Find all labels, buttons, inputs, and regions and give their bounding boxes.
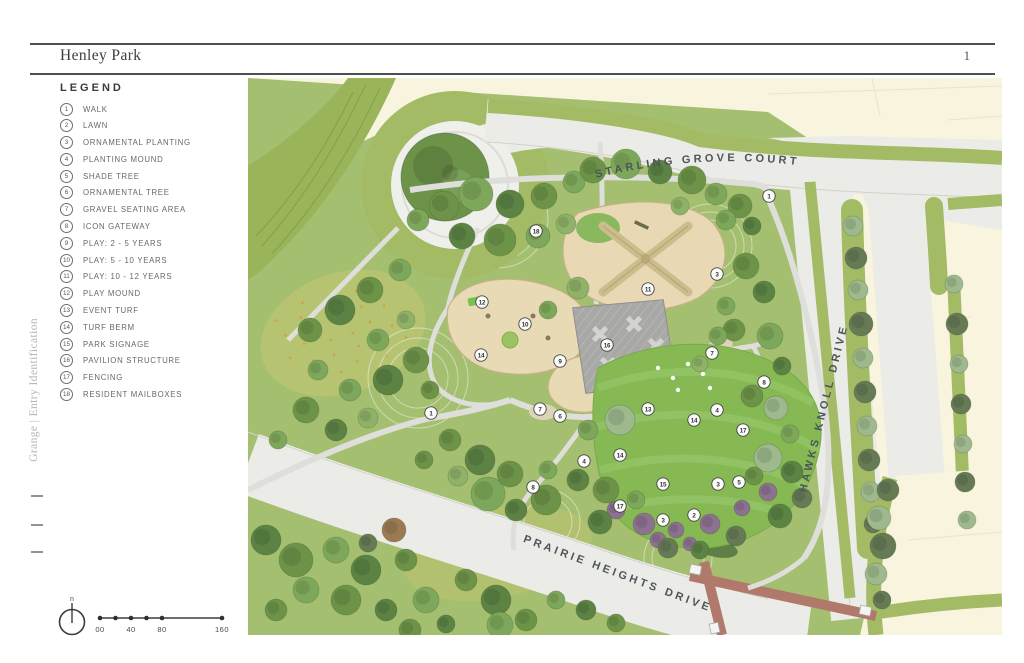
legend-item-number: 6 <box>60 186 73 199</box>
svg-text:14: 14 <box>691 417 698 424</box>
legend-item-label: FENCING <box>83 373 123 382</box>
scale-label: 160 <box>215 625 229 634</box>
legend-item-label: PLANTING MOUND <box>83 155 163 164</box>
callout-marker: 3 <box>711 268 723 280</box>
callout-marker: 4 <box>578 455 590 467</box>
callout-marker: 5 <box>733 476 745 488</box>
legend-item-label: PLAY MOUND <box>83 289 141 298</box>
legend-item-label: SHADE TREE <box>83 172 140 181</box>
legend-item-number: 5 <box>60 170 73 183</box>
svg-text:14: 14 <box>617 452 624 459</box>
legend-item: 13EVENT TURF <box>60 305 245 317</box>
svg-text:18: 18 <box>533 228 540 235</box>
callout-marker: 17 <box>737 424 749 436</box>
legend-item-number: 8 <box>60 220 73 233</box>
legend-item: 9PLAY: 2 - 5 YEARS <box>60 237 245 249</box>
legend-item: 4PLANTING MOUND <box>60 153 245 165</box>
legend-item: 11PLAY: 10 - 12 YEARS <box>60 271 245 283</box>
legend-item-label: GRAVEL SEATING AREA <box>83 205 186 214</box>
legend-item: 12PLAY MOUND <box>60 288 245 300</box>
callout-marker: 4 <box>711 404 723 416</box>
svg-text:12: 12 <box>479 299 486 306</box>
svg-text:17: 17 <box>617 503 624 510</box>
legend-item-number: 11 <box>60 270 73 283</box>
callout-marker: 14 <box>688 414 700 426</box>
north-arrow: n <box>50 592 94 647</box>
legend-item-label: LAWN <box>83 121 108 130</box>
svg-text:16: 16 <box>604 342 611 349</box>
legend-item: 2LAWN <box>60 120 245 132</box>
legend-item: 18RESIDENT MAILBOXES <box>60 389 245 401</box>
callout-marker: 18 <box>530 225 542 237</box>
legend-item: 3ORNAMENTAL PLANTING <box>60 137 245 149</box>
legend-item: 5SHADE TREE <box>60 170 245 182</box>
legend-item-label: PARK SIGNAGE <box>83 340 150 349</box>
legend-item: 16PAVILION STRUCTURE <box>60 355 245 367</box>
svg-text:17: 17 <box>740 427 747 434</box>
svg-text:15: 15 <box>660 481 667 488</box>
median-entry <box>934 206 939 286</box>
legend-item-label: WALK <box>83 105 108 114</box>
callout-marker: 6 <box>554 410 566 422</box>
callout-marker: 14 <box>475 349 487 361</box>
header-rule-top <box>30 43 995 45</box>
legend: LEGEND 1WALK2LAWN3ORNAMENTAL PLANTING4PL… <box>60 82 245 405</box>
margin-tick <box>31 524 43 526</box>
callout-marker: 7 <box>706 347 718 359</box>
north-label: n <box>70 596 74 603</box>
legend-item: 6ORNAMENTAL TREE <box>60 187 245 199</box>
site-plan-map: STARLING GROVE COURT HAWKS KNOLL DRIVE P… <box>248 78 1002 635</box>
legend-item-number: 10 <box>60 254 73 267</box>
callout-marker: 8 <box>527 481 539 493</box>
document-page: Henley Park 1 LEGEND 1WALK2LAWN3ORNAMENT… <box>0 0 1024 663</box>
legend-item-number: 12 <box>60 287 73 300</box>
callout-marker: 10 <box>519 318 531 330</box>
legend-item-label: PLAY: 2 - 5 YEARS <box>83 239 162 248</box>
legend-item-number: 15 <box>60 338 73 351</box>
legend-item-number: 16 <box>60 354 73 367</box>
callout-marker: 17 <box>614 500 626 512</box>
callout-marker: 15 <box>657 478 669 490</box>
callout-marker: 3 <box>657 514 669 526</box>
legend-item-label: RESIDENT MAILBOXES <box>83 390 182 399</box>
callout-marker: 2 <box>688 509 700 521</box>
legend-item: 14TURF BERM <box>60 321 245 333</box>
callout-marker: 3 <box>712 478 724 490</box>
legend-item-number: 14 <box>60 321 73 334</box>
callout-marker: 8 <box>758 376 770 388</box>
legend-item-label: PLAY: 10 - 12 YEARS <box>83 272 172 281</box>
legend-item-label: TURF BERM <box>83 323 135 332</box>
page-title: Henley Park <box>60 47 141 65</box>
legend-item-number: 17 <box>60 371 73 384</box>
legend-item-number: 18 <box>60 388 73 401</box>
page-number: 1 <box>950 49 970 64</box>
legend-item: 7GRAVEL SEATING AREA <box>60 204 245 216</box>
legend-item: 1WALK <box>60 103 245 115</box>
legend-item-label: ORNAMENTAL TREE <box>83 188 170 197</box>
legend-item-label: PLAY: 5 - 10 YEARS <box>83 256 167 265</box>
callout-marker: 1 <box>425 407 437 419</box>
callout-marker: 12 <box>476 296 488 308</box>
legend-title: LEGEND <box>60 82 245 94</box>
legend-list: 1WALK2LAWN3ORNAMENTAL PLANTING4PLANTING … <box>60 103 245 401</box>
legend-item-label: EVENT TURF <box>83 306 139 315</box>
legend-item-number: 2 <box>60 119 73 132</box>
legend-item-label: ICON GATEWAY <box>83 222 151 231</box>
legend-item-number: 7 <box>60 203 73 216</box>
margin-tick <box>31 495 43 497</box>
legend-item-number: 3 <box>60 136 73 149</box>
scale-bar: 004080160 <box>90 598 240 643</box>
legend-item: 15PARK SIGNAGE <box>60 338 245 350</box>
legend-item: 10PLAY: 5 - 10 YEARS <box>60 254 245 266</box>
svg-text:10: 10 <box>522 321 529 328</box>
legend-item-number: 4 <box>60 153 73 166</box>
legend-item: 8ICON GATEWAY <box>60 221 245 233</box>
scale-label: 00 <box>95 625 104 634</box>
legend-item-label: PAVILION STRUCTURE <box>83 356 181 365</box>
callout-marker: 9 <box>554 355 566 367</box>
svg-text:14: 14 <box>478 352 485 359</box>
header-rule-bottom <box>30 73 995 75</box>
legend-item-number: 13 <box>60 304 73 317</box>
legend-item-label: ORNAMENTAL PLANTING <box>83 138 191 147</box>
legend-item-number: 9 <box>60 237 73 250</box>
callout-marker: 13 <box>642 403 654 415</box>
scale-label: 80 <box>157 625 166 634</box>
callout-marker: 16 <box>601 339 613 351</box>
legend-item-number: 1 <box>60 103 73 116</box>
legend-item: 17FENCING <box>60 372 245 384</box>
callout-marker: 1 <box>763 190 775 202</box>
svg-text:11: 11 <box>645 286 652 293</box>
callout-marker: 14 <box>614 449 626 461</box>
callout-marker: 7 <box>534 403 546 415</box>
svg-text:13: 13 <box>645 406 652 413</box>
scale-label: 40 <box>126 625 135 634</box>
margin-tick <box>31 551 43 553</box>
sheet-vertical-label: Grange | Entry Identification <box>24 295 44 485</box>
callout-marker: 11 <box>642 283 654 295</box>
verge-top-right <box>948 200 1002 204</box>
